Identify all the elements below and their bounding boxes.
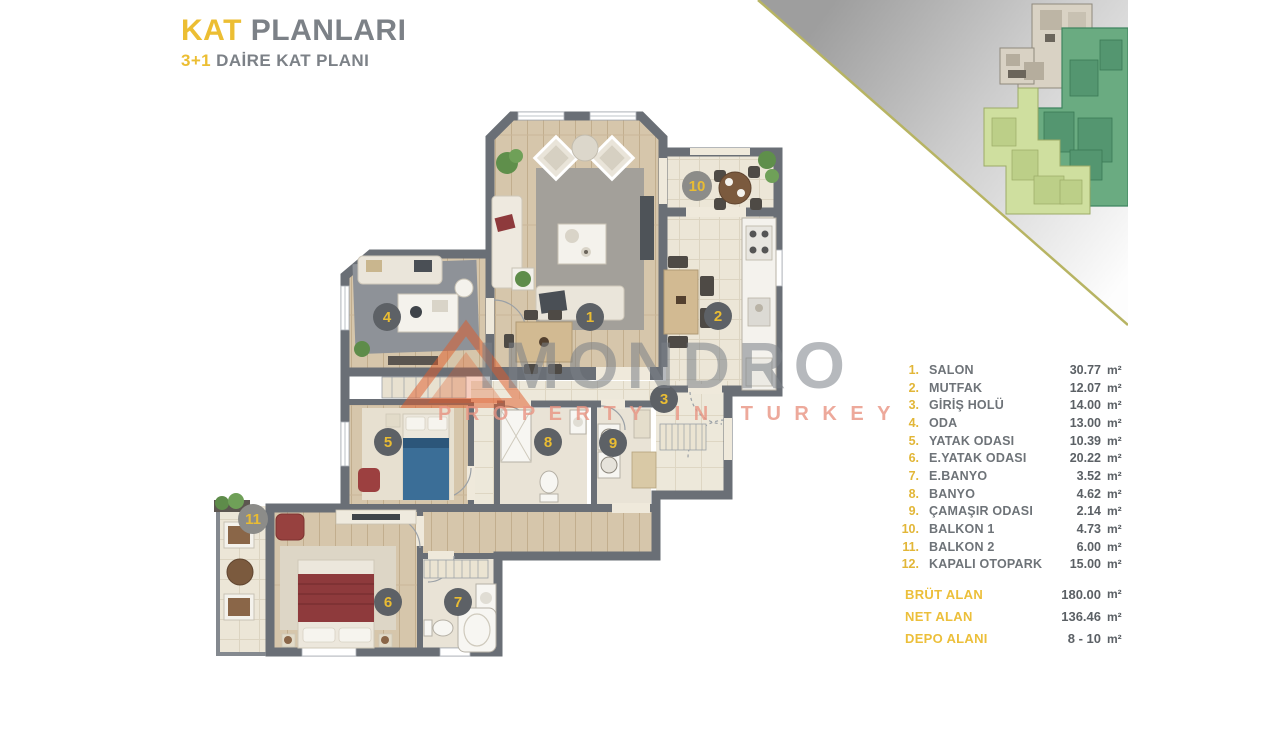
header: KAT PLANLARI 3+1 DAİRE KAT PLANI (181, 14, 406, 71)
legend-area-unit: m² (1107, 469, 1133, 483)
total-label: DEPO ALANI (905, 631, 1049, 646)
room-marker-8: 8 (534, 428, 562, 456)
legend-row: 4.ODA13.00m² (897, 414, 1133, 432)
svg-text:10: 10 (689, 178, 706, 195)
legend-row: 1.SALON30.77m² (897, 361, 1133, 379)
total-row: NET ALAN136.46m² (897, 605, 1133, 627)
legend-row: 9.ÇAMAŞIR ODASI2.14m² (897, 503, 1133, 521)
room-marker-1: 1 (576, 303, 604, 331)
page-title: KAT PLANLARI (181, 14, 406, 48)
total-unit: m² (1107, 632, 1133, 646)
legend-room-label: BALKON 2 (929, 540, 1057, 554)
legend-room-area: 13.00 (1057, 416, 1101, 430)
legend-row: 3.GİRİŞ HOLÜ14.00m² (897, 396, 1133, 414)
legend-room-label: E.BANYO (929, 469, 1057, 483)
total-value: 136.46 (1049, 609, 1101, 624)
room-legend: 1.SALON30.77m² 2.MUTFAK12.07m² 3.GİRİŞ H… (897, 361, 1133, 573)
legend-room-area: 14.00 (1057, 398, 1101, 412)
legend-area-unit: m² (1107, 434, 1133, 448)
legend-room-area: 20.22 (1057, 451, 1101, 465)
legend-room-label: SALON (929, 363, 1057, 377)
legend-area-unit: m² (1107, 557, 1133, 571)
page-subtitle-rest: DAİRE KAT PLANI (216, 51, 369, 70)
legend-room-label: YATAK ODASI (929, 434, 1057, 448)
legend-room-number: 4. (897, 416, 919, 430)
page-title-accent: KAT (181, 14, 242, 47)
svg-text:2: 2 (714, 308, 722, 325)
page: 1 2 3 4 5 6 7 8 9 10 11 IMONDRO PROPERTY… (0, 0, 1280, 731)
legend-room-label: E.YATAK ODASI (929, 451, 1057, 465)
room-marker-2: 2 (704, 302, 732, 330)
legend-room-area: 6.00 (1057, 540, 1101, 554)
legend-room-number: 11. (897, 540, 919, 554)
legend-room-label: BANYO (929, 487, 1057, 501)
legend-room-number: 3. (897, 398, 919, 412)
legend-row: 8.BANYO4.62m² (897, 485, 1133, 503)
legend-room-number: 1. (897, 363, 919, 377)
legend-room-number: 5. (897, 434, 919, 448)
legend-row: 12.KAPALI OTOPARK15.00m² (897, 556, 1133, 574)
legend-room-number: 12. (897, 557, 919, 571)
legend-area-unit: m² (1107, 416, 1133, 430)
svg-text:8: 8 (544, 434, 552, 451)
legend-area-unit: m² (1107, 398, 1133, 412)
total-unit: m² (1107, 587, 1133, 601)
legend-room-number: 6. (897, 451, 919, 465)
page-title-rest: PLANLARI (251, 14, 407, 47)
legend-area-unit: m² (1107, 504, 1133, 518)
total-unit: m² (1107, 610, 1133, 624)
legend-room-area: 30.77 (1057, 363, 1101, 377)
legend-room-number: 7. (897, 469, 919, 483)
watermark-brand: IMONDRO (478, 328, 853, 402)
legend-area-unit: m² (1107, 451, 1133, 465)
legend-row: 5.YATAK ODASI10.39m² (897, 432, 1133, 450)
page-subtitle-accent: 3+1 (181, 51, 211, 70)
corner-decoration (758, 0, 1128, 325)
total-row: BRÜT ALAN180.00m² (897, 583, 1133, 605)
area-totals: BRÜT ALAN180.00m² NET ALAN136.46m² DEPO … (897, 583, 1133, 650)
svg-text:11: 11 (245, 511, 261, 528)
legend-room-label: GİRİŞ HOLÜ (929, 398, 1057, 412)
room-marker-10: 10 (682, 171, 712, 201)
svg-text:7: 7 (454, 594, 462, 611)
page-subtitle: 3+1 DAİRE KAT PLANI (181, 51, 406, 71)
room-marker-6: 6 (374, 588, 402, 616)
legend-room-label: KAPALI OTOPARK (929, 557, 1057, 571)
legend-row: 7.E.BANYO3.52m² (897, 467, 1133, 485)
legend-room-area: 3.52 (1057, 469, 1101, 483)
legend-room-area: 2.14 (1057, 504, 1101, 518)
legend-area-unit: m² (1107, 522, 1133, 536)
legend-room-area: 10.39 (1057, 434, 1101, 448)
total-row: DEPO ALANI8 - 10m² (897, 628, 1133, 650)
legend-room-area: 4.62 (1057, 487, 1101, 501)
room-marker-9: 9 (599, 429, 627, 457)
legend-room-number: 2. (897, 381, 919, 395)
total-value: 8 - 10 (1049, 631, 1101, 646)
total-label: NET ALAN (905, 609, 1049, 624)
oda-furniture (352, 256, 479, 365)
legend-room-number: 9. (897, 504, 919, 518)
svg-text:4: 4 (383, 309, 392, 326)
legend-room-area: 12.07 (1057, 381, 1101, 395)
svg-text:1: 1 (586, 309, 594, 326)
legend-room-number: 10. (897, 522, 919, 536)
room-marker-4: 4 (373, 303, 401, 331)
svg-text:9: 9 (609, 435, 617, 452)
legend-area-unit: m² (1107, 487, 1133, 501)
legend-room-area: 15.00 (1057, 557, 1101, 571)
watermark: IMONDRO PROPERTY IN TURKEY (410, 328, 904, 425)
suite-corridor-floor (420, 508, 656, 556)
total-value: 180.00 (1049, 587, 1101, 602)
legend-area-unit: m² (1107, 363, 1133, 377)
legend-area-unit: m² (1107, 381, 1133, 395)
svg-text:6: 6 (384, 594, 392, 611)
legend-room-area: 4.73 (1057, 522, 1101, 536)
legend-room-label: MUTFAK (929, 381, 1057, 395)
legend-room-label: ÇAMAŞIR ODASI (929, 504, 1057, 518)
room-marker-11: 11 (238, 504, 268, 534)
watermark-tagline: PROPERTY IN TURKEY (438, 403, 904, 425)
legend-room-label: ODA (929, 416, 1057, 430)
room-marker-7: 7 (444, 588, 472, 616)
legend-room-label: BALKON 1 (929, 522, 1057, 536)
legend-row: 10.BALKON 14.73m² (897, 520, 1133, 538)
legend-row: 11.BALKON 26.00m² (897, 538, 1133, 556)
total-label: BRÜT ALAN (905, 587, 1049, 602)
legend-area-unit: m² (1107, 540, 1133, 554)
legend-row: 6.E.YATAK ODASI20.22m² (897, 449, 1133, 467)
svg-text:5: 5 (384, 434, 392, 451)
legend-room-number: 8. (897, 487, 919, 501)
legend-row: 2.MUTFAK12.07m² (897, 379, 1133, 397)
room-marker-5: 5 (374, 428, 402, 456)
